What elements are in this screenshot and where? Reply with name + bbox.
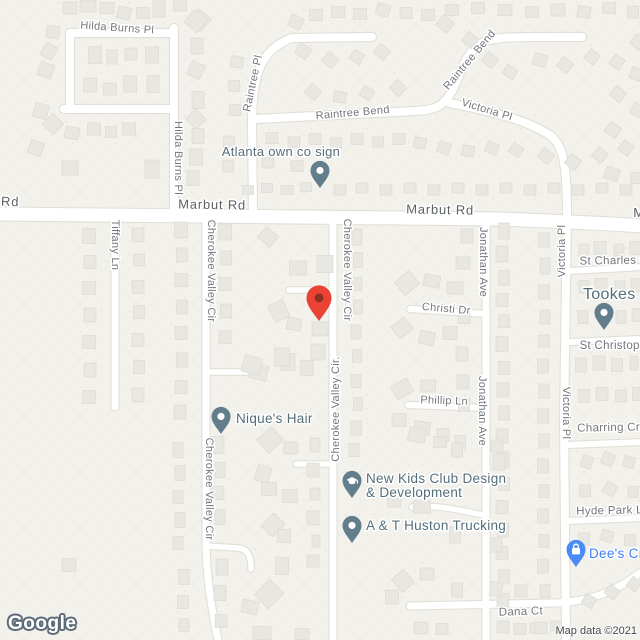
poi-label[interactable]: New Kids Club Design <box>366 471 506 486</box>
street-label: Charring Cro <box>577 421 640 434</box>
street-label: St Christoph <box>580 340 640 352</box>
street-label: Cherokee Valley Cir <box>203 438 215 541</box>
street-label: Hyde Park Li <box>576 504 640 517</box>
poi-dot-icon <box>316 167 323 174</box>
street-label: Hilda Burns Pl <box>172 121 184 195</box>
street-label: Jonathan Ave <box>476 376 488 446</box>
street-label: Tiffany Ln <box>109 220 121 271</box>
poi-label[interactable]: Atlanta own co sign <box>222 144 340 159</box>
street-label: Cherokee Valley Cir <box>341 219 353 322</box>
map-canvas[interactable]: Hilda Burns PlHilda Burns PlRaintree PlR… <box>0 0 640 640</box>
poi-dot-icon <box>600 309 607 316</box>
street-label: Rd <box>1 194 20 210</box>
poi-label[interactable]: A & T Huston Trucking <box>366 518 506 533</box>
street-label: Cherokee Valley Cir. <box>330 356 342 461</box>
poi-label[interactable]: Nique's Hair <box>236 411 313 426</box>
shopping-bag-icon <box>572 548 580 555</box>
street-label: Marbut Rd <box>178 196 246 212</box>
poi-dot-icon <box>348 522 355 529</box>
street-label: Dana Ct <box>499 605 544 619</box>
graduation-cap-icon <box>357 480 358 484</box>
street-label: Jonathan Ave <box>477 227 489 297</box>
google-logo[interactable]: Google <box>8 613 76 635</box>
poi-label[interactable]: & Development <box>366 485 462 500</box>
poi-dot-icon <box>217 413 224 420</box>
street-label: M <box>633 205 640 220</box>
map-viewport[interactable]: Hilda Burns PlHilda Burns PlRaintree PlR… <box>0 0 640 640</box>
map-data-attribution: Map data ©2021 <box>556 625 638 637</box>
street-label: Marbut Rd <box>406 201 474 217</box>
street-label: Phillip Ln <box>420 394 468 408</box>
poi-label[interactable]: Tookes La <box>583 286 640 303</box>
marker-inner-dot <box>315 293 324 302</box>
street-label: St Charles C <box>579 254 640 267</box>
street-label: Victoria Pl <box>556 225 568 278</box>
street-label: Cherokee Valley Cir <box>205 220 217 323</box>
poi-label[interactable]: Dee's Cr <box>589 546 640 561</box>
street-label: Victoria Pl <box>560 387 572 440</box>
